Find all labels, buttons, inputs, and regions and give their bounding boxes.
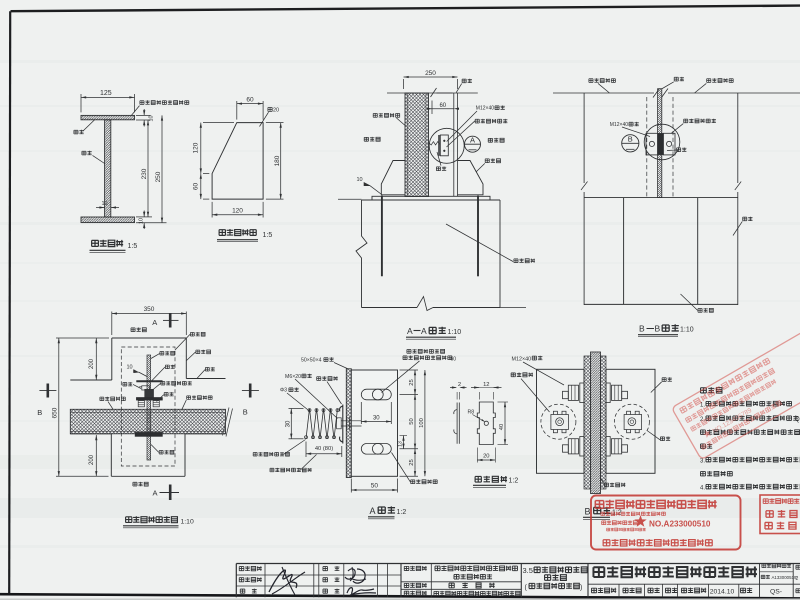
svg-text:4.: 4. [700,485,705,491]
svg-text:50×50×4: 50×50×4 [301,358,322,364]
svg-text:25: 25 [409,379,415,385]
svg-text:100: 100 [419,418,425,428]
svg-text:10: 10 [101,201,107,207]
svg-text:1:5: 1:5 [128,243,138,250]
svg-text:180: 180 [274,155,281,166]
svg-text:60: 60 [246,97,254,104]
svg-text:125: 125 [100,90,112,97]
svg-text:200: 200 [89,454,95,465]
svg-text:120: 120 [192,142,199,153]
svg-text:10: 10 [357,177,363,183]
svg-text:10: 10 [127,365,133,371]
svg-text:60: 60 [439,103,446,109]
svg-text:B: B [655,324,661,334]
svg-text:1:2: 1:2 [397,509,407,516]
svg-text:M6×20: M6×20 [285,374,301,380]
svg-text:1:5: 1:5 [263,232,273,239]
svg-text:250: 250 [425,70,436,77]
svg-text:12: 12 [483,382,489,388]
svg-text:230: 230 [141,168,148,179]
svg-text:350: 350 [144,306,155,313]
svg-text:30: 30 [285,420,291,427]
svg-text:20: 20 [273,108,279,114]
svg-text:40: 40 [499,424,505,430]
svg-text:250: 250 [155,171,162,182]
svg-text:10: 10 [149,115,155,121]
svg-text:2014.10: 2014.10 [710,589,735,596]
svg-text:2: 2 [458,382,461,388]
svg-text:Q: Q [795,417,800,423]
svg-text:QS-: QS- [770,589,782,596]
svg-text:13: 13 [398,441,404,447]
svg-text:1:2: 1:2 [509,478,519,485]
svg-text:10: 10 [139,218,145,224]
svg-text:NO.A233000510: NO.A233000510 [649,520,711,529]
svg-text:A: A [421,326,427,336]
svg-text:650: 650 [52,407,59,418]
svg-text:B: B [628,134,633,143]
svg-text:M12×40: M12×40 [476,106,494,112]
svg-text:B: B [585,507,591,517]
svg-text:200: 200 [89,358,95,369]
svg-text:30: 30 [373,416,380,422]
svg-text:50: 50 [371,483,379,490]
svg-text:1:10: 1:10 [181,518,194,525]
svg-text:A: A [152,318,157,327]
svg-text:A: A [407,326,413,336]
svg-text:60: 60 [451,356,457,362]
svg-text:3.5: 3.5 [523,566,533,575]
svg-text:R8: R8 [468,409,475,415]
svg-text:A: A [370,506,376,516]
svg-text:): ) [580,585,582,592]
svg-text:M12×40: M12×40 [610,122,628,128]
svg-text:1:10: 1:10 [448,329,462,336]
svg-text:A: A [470,135,475,144]
svg-text:A133000519: A133000519 [772,575,797,580]
svg-text:M12×40: M12×40 [512,356,532,362]
svg-text:B: B [37,408,42,417]
svg-text:40 (80): 40 (80) [315,446,333,452]
svg-text:Φ3: Φ3 [280,388,287,394]
svg-text:2: 2 [796,576,799,582]
svg-text:60: 60 [192,183,199,191]
svg-text:25: 25 [409,459,415,465]
svg-text:1:10: 1:10 [680,327,694,334]
svg-text:A: A [153,489,158,498]
svg-text:B: B [639,324,645,334]
svg-text:B: B [243,408,248,417]
svg-text:3.: 3. [700,458,705,464]
svg-text:50: 50 [409,418,415,424]
svg-text:20: 20 [483,454,489,460]
svg-text:120: 120 [232,208,243,215]
